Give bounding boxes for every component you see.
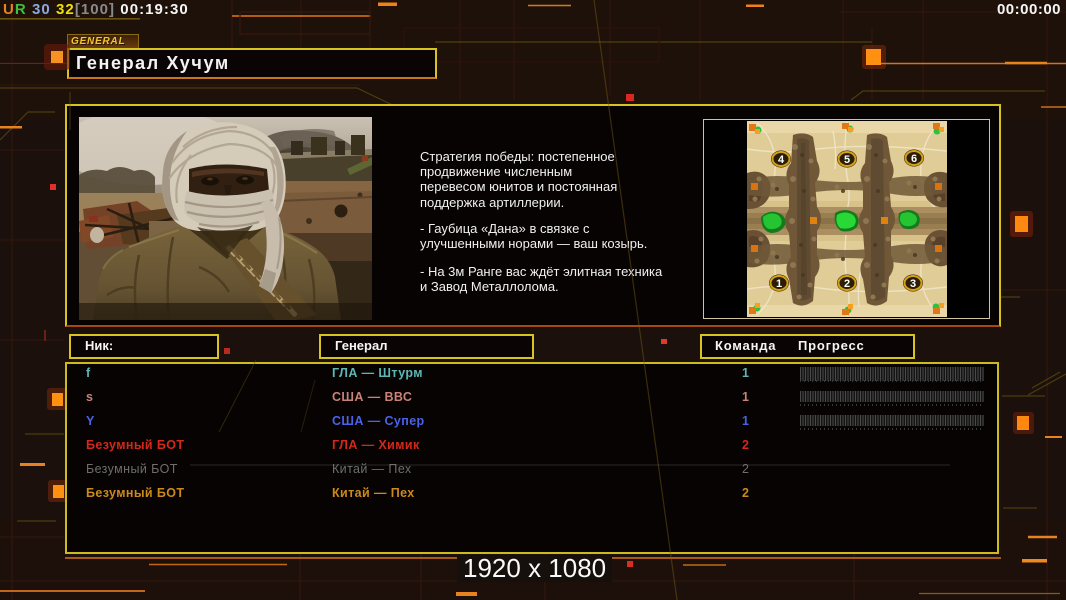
svg-text:1: 1	[776, 278, 782, 290]
svg-text:6: 6	[911, 153, 917, 165]
svg-text:3: 3	[910, 278, 916, 290]
svg-text:4: 4	[778, 154, 785, 166]
svg-text:5: 5	[844, 154, 850, 166]
svg-text:2: 2	[844, 278, 850, 290]
